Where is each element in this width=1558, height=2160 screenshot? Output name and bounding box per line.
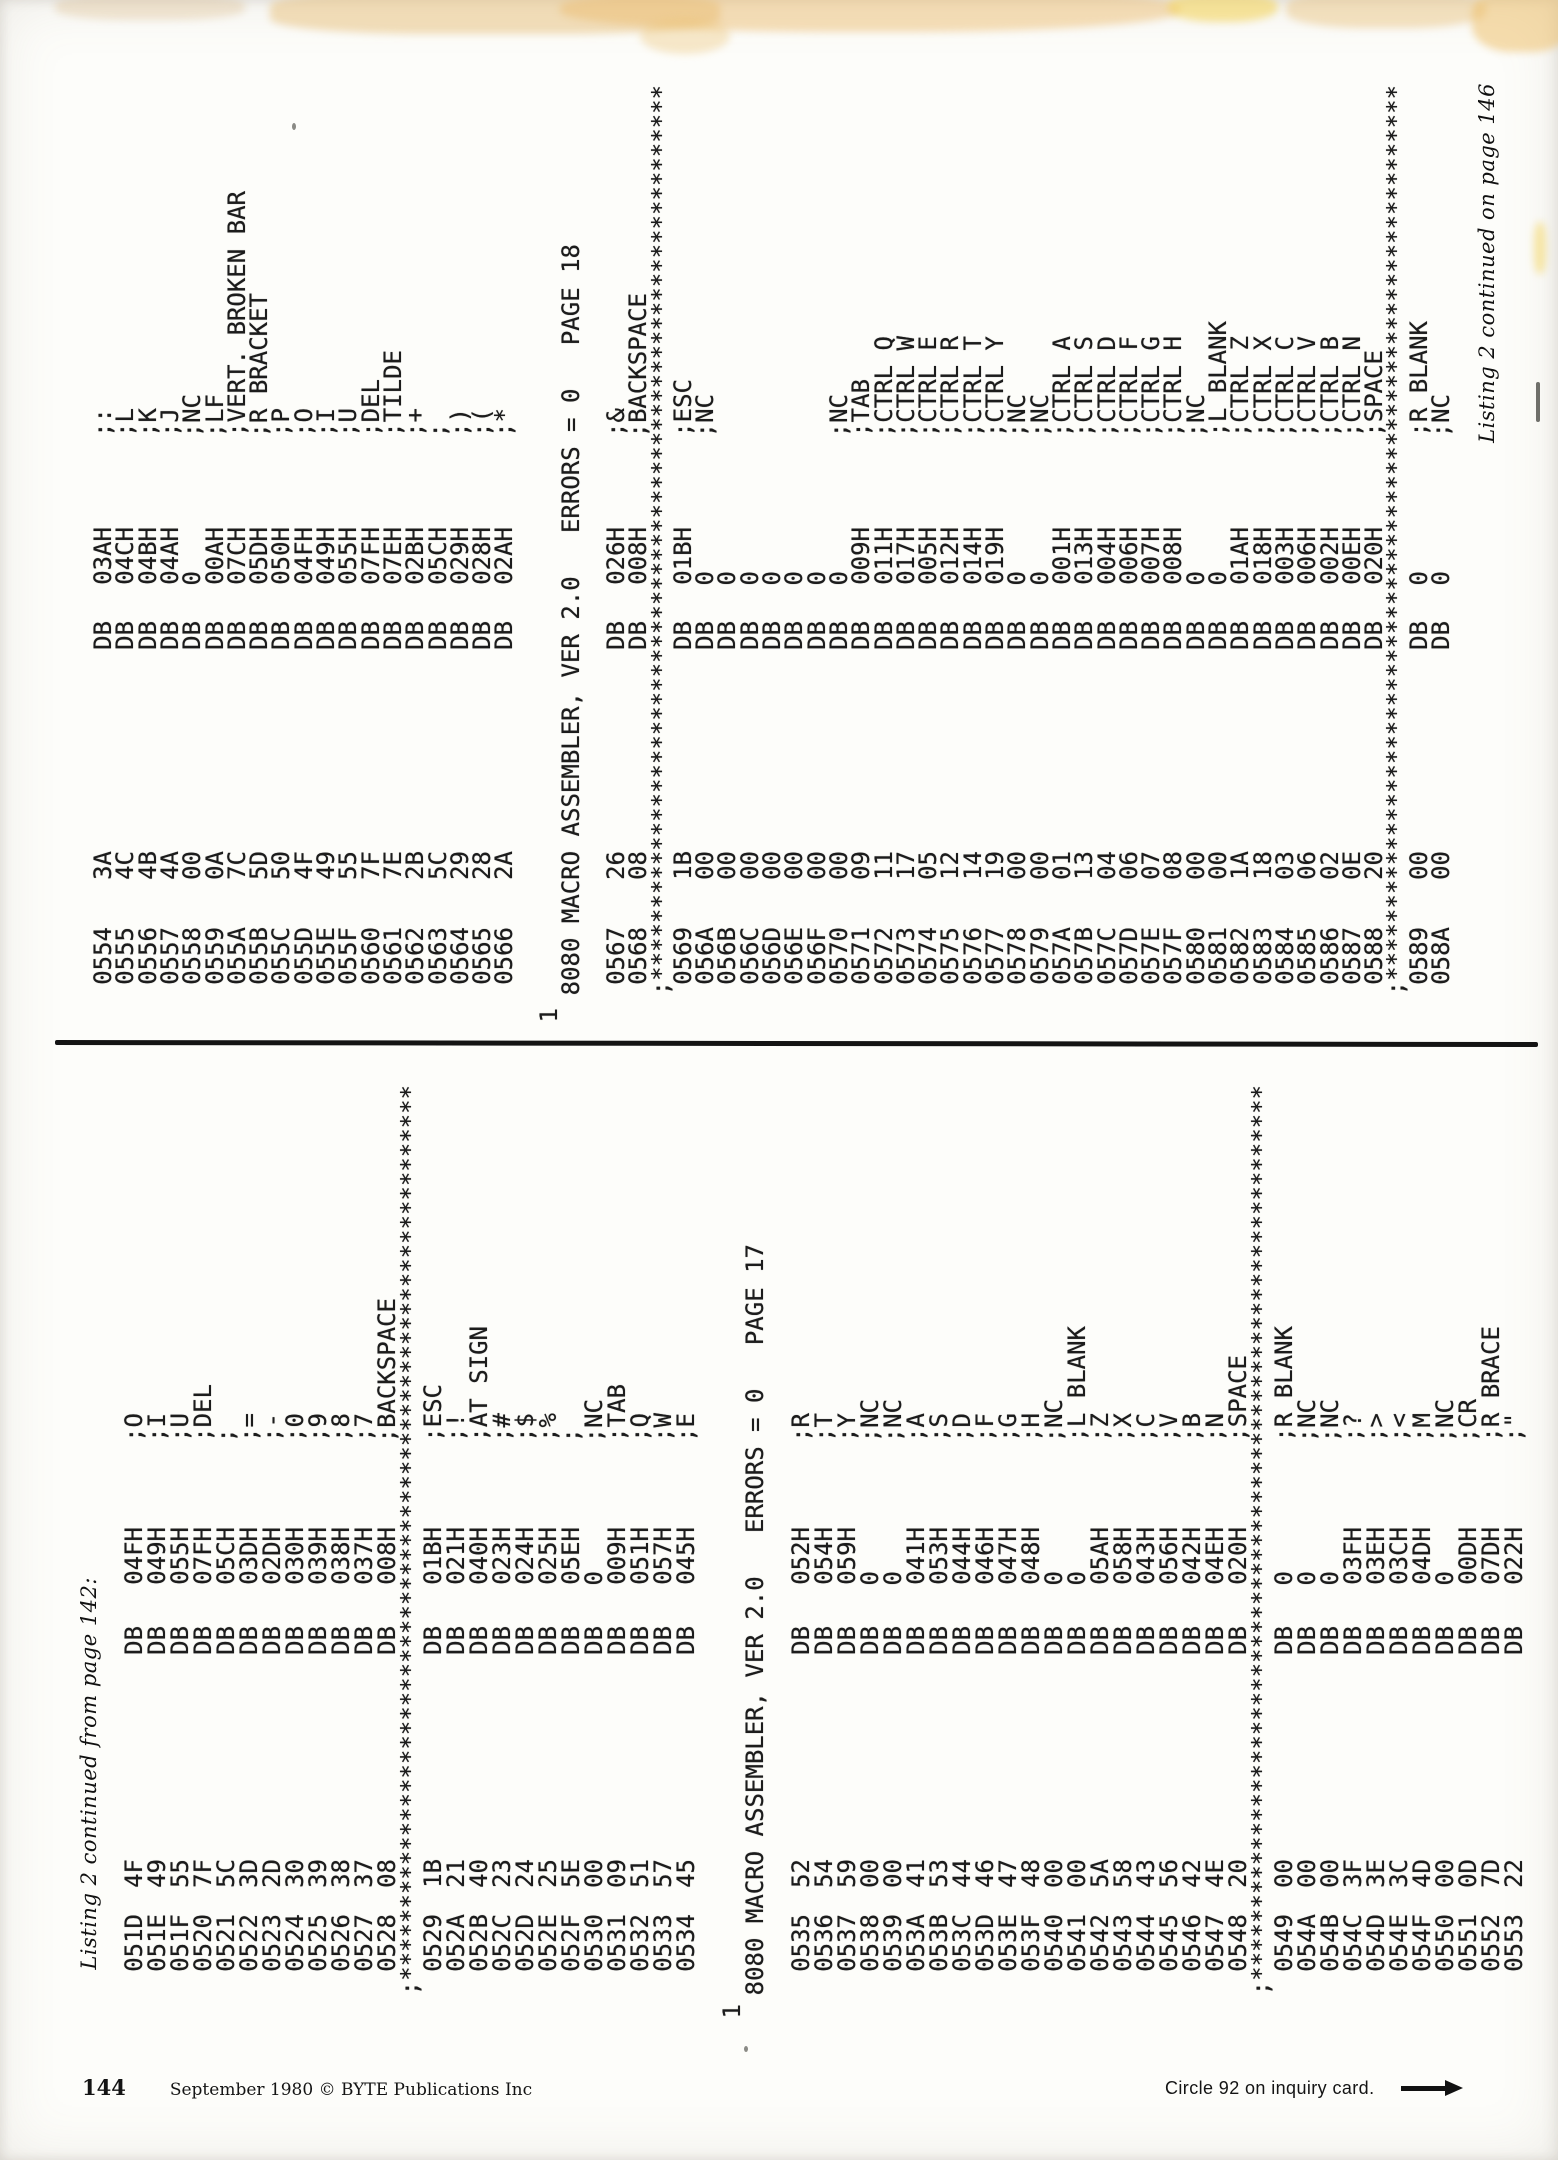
form-feed-marker: 1 [720, 2004, 744, 2018]
listing-caption: Listing 2 continued on page 146 [1474, 83, 1500, 443]
scan-smudge [640, 18, 730, 54]
form-feed-marker: 1 [537, 1008, 561, 1022]
listing-address: 058A [1429, 927, 1453, 985]
listing-byte: 00 [1429, 851, 1453, 880]
listing-address: 0534 [674, 1914, 698, 1972]
scan-smudge [1472, 0, 1558, 52]
magazine-page: 05543ADB03AH;:05554CDB04CH;L05564BDB04BH… [0, 0, 1558, 2160]
scan-smudge [55, 0, 245, 20]
listing-opcode: DB [492, 621, 516, 650]
listing-comment: ;" [1502, 1413, 1526, 1442]
listing-comment: ;NC [1429, 394, 1453, 437]
scan-artifact-mark [1536, 382, 1540, 422]
footer-imprint: September 1980 © BYTE Publications Inc [170, 2080, 532, 2100]
listing-operand: 02AH [492, 527, 516, 585]
listing-operand: 022H [1502, 1527, 1526, 1585]
scan-smudge [560, 0, 1180, 32]
listing-opcode: DB [1429, 621, 1453, 650]
assembler-page-header: 8080 MACRO ASSEMBLER, VER 2.0 ERRORS = 0… [559, 244, 583, 995]
listing-byte: 2A [492, 851, 516, 880]
scan-smudge [270, 0, 720, 34]
scan-speck [292, 123, 296, 130]
listing-opcode: DB [674, 1626, 698, 1655]
page-number: 144 [82, 2075, 126, 2100]
scan-smudge [1168, 0, 1278, 22]
listing-byte: 22 [1502, 1859, 1526, 1888]
listing-address: 0553 [1502, 1914, 1526, 1972]
scan-speck [744, 2046, 748, 2052]
right-arrow-icon [1401, 2080, 1463, 2096]
listing-comment: ;* [492, 408, 516, 437]
scan-smudge [1534, 222, 1546, 274]
scan-smudge [1286, 0, 1486, 28]
footer-left: 144September 1980 © BYTE Publications In… [82, 2075, 532, 2105]
footer-circle-note: Circle 92 on inquiry card. [1165, 2078, 1375, 2098]
listing-operand: 045H [674, 1527, 698, 1585]
listing-caption: Listing 2 continued from page 142: [76, 1577, 102, 1970]
listing-operand: 0 [1429, 571, 1453, 585]
listing-address: 0566 [492, 927, 516, 985]
listing-comment: ;NC [693, 394, 717, 437]
footer-right: Circle 92 on inquiry card. [1165, 2078, 1463, 2108]
column-divider-rule [55, 1040, 1538, 1047]
listing-byte: 45 [674, 1859, 698, 1888]
listing-opcode: DB [1502, 1626, 1526, 1655]
listing-comment: ;E [674, 1413, 698, 1442]
assembler-page-header: 8080 MACRO ASSEMBLER, VER 2.0 ERRORS = 0… [743, 1244, 767, 1995]
